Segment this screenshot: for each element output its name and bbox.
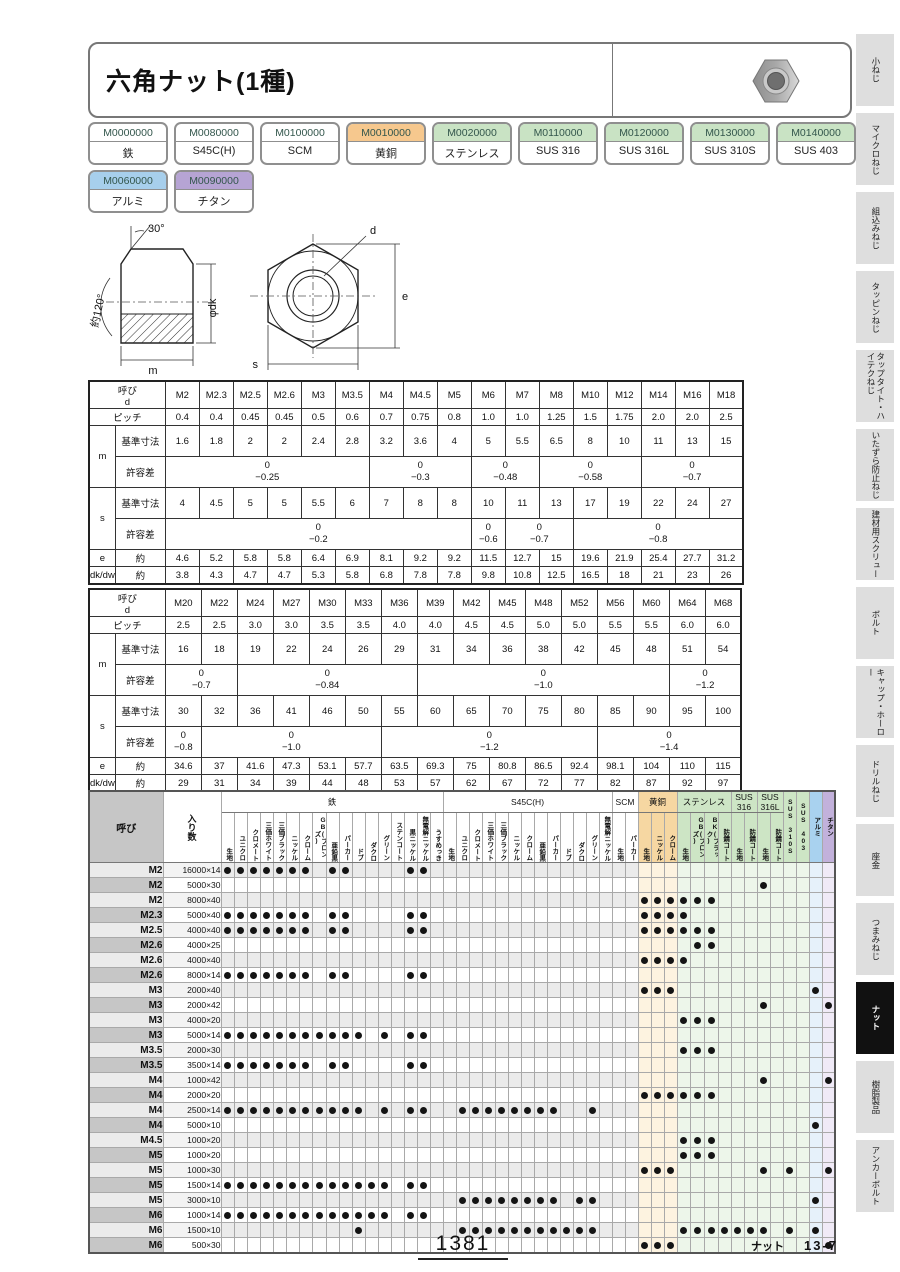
matrix-cell xyxy=(664,1148,677,1163)
matrix-cell xyxy=(783,1028,796,1043)
matrix-cell xyxy=(326,968,339,983)
sidebar-tab: つまみねじ xyxy=(856,903,894,975)
matrix-cell xyxy=(508,953,521,968)
matrix-cell xyxy=(704,1163,718,1178)
matrix-finish-header: グリーン xyxy=(378,813,391,863)
dim-col-header: M36 xyxy=(381,589,417,617)
availability-dot xyxy=(680,897,687,904)
matrix-finish-header: GB(ブロンズ) xyxy=(690,813,704,863)
matrix-qty-header: 入り数 xyxy=(163,791,221,863)
dim-value-cell: 80 xyxy=(561,696,597,727)
matrix-cell xyxy=(704,983,718,998)
matrix-cell xyxy=(339,1043,352,1058)
matrix-cell xyxy=(417,923,430,938)
chip-label: SUS 316 xyxy=(520,142,596,159)
matrix-cell xyxy=(783,923,796,938)
matrix-qty-cell: 4000×40 xyxy=(163,923,221,938)
matrix-cell xyxy=(573,1013,586,1028)
matrix-cell xyxy=(391,1193,404,1208)
matrix-cell xyxy=(573,878,586,893)
matrix-cell xyxy=(312,1013,326,1028)
matrix-cell xyxy=(599,953,612,968)
matrix-cell xyxy=(508,1193,521,1208)
matrix-cell xyxy=(482,983,495,998)
matrix-cell xyxy=(599,908,612,923)
matrix-cell xyxy=(783,1073,796,1088)
matrix-cell xyxy=(221,1163,234,1178)
matrix-cell xyxy=(430,1103,443,1118)
matrix-cell xyxy=(482,1148,495,1163)
matrix-cell xyxy=(770,1043,783,1058)
dim-corner-header: 呼びd xyxy=(89,381,165,409)
matrix-cell xyxy=(299,1058,312,1073)
matrix-cell xyxy=(312,1178,326,1193)
sidebar-tab-label: マイクロねじ xyxy=(870,124,880,175)
matrix-cell xyxy=(273,1193,286,1208)
matrix-cell xyxy=(770,953,783,968)
matrix-cell xyxy=(612,1088,625,1103)
matrix-cell xyxy=(547,1238,560,1254)
matrix-cell xyxy=(352,923,365,938)
matrix-cell xyxy=(664,1028,677,1043)
matrix-cell xyxy=(221,1103,234,1118)
availability-dot xyxy=(316,1107,323,1114)
matrix-cell xyxy=(391,953,404,968)
matrix-cell xyxy=(547,1193,560,1208)
dim-value-cell: 2.4 xyxy=(301,426,335,457)
availability-dot xyxy=(224,1212,231,1219)
matrix-cell xyxy=(783,1223,796,1238)
dim-row-header: 許容差 xyxy=(115,457,165,488)
dim-col-header: M2.6 xyxy=(267,381,301,409)
matrix-cell xyxy=(651,1238,664,1254)
matrix-cell xyxy=(286,1133,299,1148)
matrix-cell xyxy=(273,998,286,1013)
dim-corner-header: 呼びd xyxy=(89,589,165,617)
matrix-cell xyxy=(718,1193,731,1208)
matrix-size-header: 呼び xyxy=(89,791,163,863)
matrix-cell xyxy=(234,968,247,983)
matrix-cell xyxy=(822,953,835,968)
matrix-cell xyxy=(809,953,822,968)
dim-value-cell: 24 xyxy=(309,634,345,665)
chip-code: M0120000 xyxy=(606,124,682,142)
matrix-cell xyxy=(312,908,326,923)
matrix-cell xyxy=(690,1043,704,1058)
matrix-cell xyxy=(718,1058,731,1073)
matrix-cell xyxy=(404,1193,417,1208)
matrix-cell xyxy=(456,1058,469,1073)
matrix-row: M2.35000×40 xyxy=(89,908,835,923)
matrix-cell xyxy=(690,1118,704,1133)
matrix-cell xyxy=(430,1193,443,1208)
matrix-cell xyxy=(482,1133,495,1148)
matrix-size-cell: M4.5 xyxy=(89,1133,163,1148)
dim-value-cell: 85 xyxy=(597,696,633,727)
matrix-cell xyxy=(664,1178,677,1193)
matrix-cell xyxy=(482,968,495,983)
matrix-cell xyxy=(326,1133,339,1148)
matrix-cell xyxy=(521,938,534,953)
matrix-cell xyxy=(796,938,809,953)
matrix-cell xyxy=(247,893,260,908)
matrix-cell xyxy=(796,1208,809,1223)
matrix-cell xyxy=(757,1163,770,1178)
matrix-size-cell: M6 xyxy=(89,1208,163,1223)
catalog-page: 六角ナット(1種) M0000000鉄M0080000S45C(H)M01000… xyxy=(0,0,900,1272)
matrix-cell xyxy=(704,1148,718,1163)
matrix-cell xyxy=(664,1208,677,1223)
matrix-cell xyxy=(326,1043,339,1058)
matrix-cell xyxy=(273,1103,286,1118)
availability-dot xyxy=(368,1182,375,1189)
matrix-cell xyxy=(469,1103,482,1118)
availability-dot xyxy=(641,1167,648,1174)
matrix-cell xyxy=(495,1088,508,1103)
matrix-cell xyxy=(677,938,690,953)
matrix-cell xyxy=(638,1238,651,1254)
matrix-cell xyxy=(456,998,469,1013)
matrix-cell xyxy=(586,1118,599,1133)
matrix-cell xyxy=(770,908,783,923)
sidebar-tab: タップタイト・ハイテクねじ xyxy=(856,350,894,422)
product-chip: M0020000ステンレス xyxy=(432,122,512,165)
matrix-cell xyxy=(731,1058,744,1073)
matrix-cell xyxy=(704,938,718,953)
matrix-qty-cell: 1000×14 xyxy=(163,1208,221,1223)
dim-value-cell: 12.5 xyxy=(539,567,573,585)
matrix-cell xyxy=(573,1193,586,1208)
dim-tolerance-cell: 0−1.4 xyxy=(597,727,741,758)
matrix-cell xyxy=(718,878,731,893)
availability-dot xyxy=(276,1032,283,1039)
product-chip: M0110000SUS 316 xyxy=(518,122,598,165)
matrix-cell xyxy=(651,908,664,923)
matrix-cell xyxy=(612,863,625,878)
matrix-cell xyxy=(378,1043,391,1058)
product-chip: M0130000SUS 310S xyxy=(690,122,770,165)
matrix-cell xyxy=(443,1118,456,1133)
dim-value-cell: 4 xyxy=(437,426,471,457)
matrix-cell xyxy=(299,1148,312,1163)
availability-dot xyxy=(407,972,414,979)
matrix-cell xyxy=(757,1193,770,1208)
matrix-cell xyxy=(469,878,482,893)
matrix-cell xyxy=(547,1223,560,1238)
matrix-cell xyxy=(731,893,744,908)
matrix-cell xyxy=(482,923,495,938)
matrix-cell xyxy=(586,998,599,1013)
matrix-cell xyxy=(822,878,835,893)
matrix-cell xyxy=(247,1043,260,1058)
matrix-cell xyxy=(599,1103,612,1118)
availability-dot xyxy=(420,912,427,919)
matrix-cell xyxy=(430,998,443,1013)
matrix-cell xyxy=(247,983,260,998)
availability-dot xyxy=(407,1212,414,1219)
matrix-cell xyxy=(247,953,260,968)
matrix-cell xyxy=(339,938,352,953)
matrix-cell xyxy=(312,1058,326,1073)
availability-dot xyxy=(342,1032,349,1039)
dim-col-header: M52 xyxy=(561,589,597,617)
dim-row-header: 許容差 xyxy=(115,727,165,758)
matrix-cell xyxy=(260,1013,273,1028)
matrix-finish-header: ドブ xyxy=(352,813,365,863)
dim-col-header: M4.5 xyxy=(403,381,437,409)
matrix-cell xyxy=(638,1193,651,1208)
matrix-cell xyxy=(796,1148,809,1163)
matrix-cell xyxy=(547,1013,560,1028)
matrix-cell xyxy=(273,968,286,983)
matrix-cell xyxy=(822,1103,835,1118)
availability-dot xyxy=(289,972,296,979)
matrix-row: M28000×40 xyxy=(89,893,835,908)
matrix-cell xyxy=(547,1163,560,1178)
availability-dot xyxy=(680,927,687,934)
availability-dot xyxy=(342,1182,349,1189)
matrix-group-header: SUS 310S xyxy=(783,791,796,863)
chip-label: アルミ xyxy=(90,190,166,211)
matrix-cell xyxy=(247,1028,260,1043)
matrix-cell xyxy=(822,923,835,938)
matrix-row: M45000×10 xyxy=(89,1118,835,1133)
label-s: s xyxy=(253,359,259,371)
dim-value-cell: 9.2 xyxy=(403,550,437,567)
matrix-cell xyxy=(326,878,339,893)
dim-row-header: 基準寸法 xyxy=(115,426,165,457)
matrix-cell xyxy=(247,1223,260,1238)
matrix-cell xyxy=(391,1058,404,1073)
matrix-cell xyxy=(365,983,378,998)
dim-tolerance-cell: 0−0.3 xyxy=(369,457,471,488)
matrix-qty-cell: 5000×40 xyxy=(163,908,221,923)
sidebar-tab-label: ドリルねじ xyxy=(870,760,880,803)
dim-tolerance-cell: 0−0.8 xyxy=(573,519,743,550)
matrix-cell xyxy=(547,863,560,878)
matrix-cell xyxy=(456,908,469,923)
matrix-cell xyxy=(796,1088,809,1103)
matrix-cell xyxy=(573,863,586,878)
matrix-cell xyxy=(508,983,521,998)
matrix-cell xyxy=(704,1058,718,1073)
dim-value-cell: 23 xyxy=(675,567,709,585)
dim-value-cell: 60 xyxy=(417,696,453,727)
matrix-cell xyxy=(273,1058,286,1073)
dim-value-cell: 10 xyxy=(471,488,505,519)
dim-value-cell: 17 xyxy=(573,488,607,519)
matrix-cell xyxy=(286,1058,299,1073)
matrix-cell xyxy=(234,998,247,1013)
matrix-cell xyxy=(260,1133,273,1148)
matrix-cell xyxy=(809,1028,822,1043)
availability-dot xyxy=(329,1212,336,1219)
matrix-cell xyxy=(731,1043,744,1058)
chip-code: M0110000 xyxy=(520,124,596,142)
dim-value-cell: 21.9 xyxy=(607,550,641,567)
availability-dot xyxy=(472,1107,479,1114)
matrix-cell xyxy=(612,1178,625,1193)
dim-m-header: m xyxy=(89,634,115,696)
matrix-cell xyxy=(508,1208,521,1223)
matrix-finish-header: 無電解ニッケル xyxy=(417,813,430,863)
matrix-group-header: チタン xyxy=(822,791,835,863)
dim-value-cell: 25.4 xyxy=(641,550,675,567)
matrix-cell xyxy=(560,1103,573,1118)
matrix-cell xyxy=(443,893,456,908)
matrix-cell xyxy=(482,863,495,878)
matrix-cell xyxy=(482,1013,495,1028)
matrix-cell xyxy=(286,1148,299,1163)
matrix-cell xyxy=(286,1028,299,1043)
matrix-cell xyxy=(664,1013,677,1028)
dim-row-header: 許容差 xyxy=(115,665,165,696)
matrix-cell xyxy=(391,938,404,953)
availability-dot xyxy=(342,1107,349,1114)
matrix-cell xyxy=(534,1073,547,1088)
sidebar-tab: タッピンねじ xyxy=(856,271,894,343)
matrix-cell xyxy=(625,1118,638,1133)
matrix-cell xyxy=(404,1118,417,1133)
dim-tolerance-cell: 0−0.7 xyxy=(505,519,573,550)
matrix-cell xyxy=(443,1208,456,1223)
availability-dot xyxy=(250,1182,257,1189)
matrix-cell xyxy=(482,1103,495,1118)
matrix-cell xyxy=(299,863,312,878)
matrix-cell xyxy=(482,1088,495,1103)
matrix-cell xyxy=(573,983,586,998)
availability-dot xyxy=(368,1212,375,1219)
matrix-cell xyxy=(783,893,796,908)
matrix-size-cell: M2 xyxy=(89,878,163,893)
matrix-cell xyxy=(822,1133,835,1148)
matrix-cell xyxy=(573,1148,586,1163)
matrix-cell xyxy=(312,1238,326,1254)
matrix-cell xyxy=(770,1028,783,1043)
matrix-cell xyxy=(547,893,560,908)
matrix-cell xyxy=(677,893,690,908)
matrix-cell xyxy=(430,1043,443,1058)
matrix-cell xyxy=(534,1223,547,1238)
matrix-cell xyxy=(495,1163,508,1178)
matrix-cell xyxy=(234,983,247,998)
matrix-cell xyxy=(744,968,757,983)
matrix-cell xyxy=(260,938,273,953)
matrix-cell xyxy=(521,983,534,998)
matrix-cell xyxy=(260,1208,273,1223)
matrix-cell xyxy=(443,1133,456,1148)
availability-dot xyxy=(641,912,648,919)
matrix-cell xyxy=(299,953,312,968)
matrix-cell xyxy=(482,1178,495,1193)
matrix-cell xyxy=(365,998,378,1013)
availability-dot xyxy=(812,1227,819,1234)
matrix-cell xyxy=(690,878,704,893)
matrix-cell xyxy=(326,1148,339,1163)
matrix-cell xyxy=(757,878,770,893)
matrix-cell xyxy=(690,863,704,878)
availability-dot xyxy=(355,1032,362,1039)
dim-value-cell: 36 xyxy=(237,696,273,727)
matrix-qty-cell: 4000×20 xyxy=(163,1013,221,1028)
matrix-cell xyxy=(809,1208,822,1223)
matrix-cell xyxy=(586,1028,599,1043)
availability-dot xyxy=(289,912,296,919)
matrix-cell xyxy=(443,1043,456,1058)
matrix-cell xyxy=(770,983,783,998)
matrix-cell xyxy=(770,938,783,953)
matrix-cell xyxy=(482,878,495,893)
matrix-cell xyxy=(744,1073,757,1088)
sidebar-tab-label: 小ねじ xyxy=(870,57,880,83)
matrix-cell xyxy=(299,968,312,983)
matrix-cell xyxy=(286,1043,299,1058)
matrix-cell xyxy=(534,1028,547,1043)
matrix-cell xyxy=(469,1148,482,1163)
matrix-cell xyxy=(651,1028,664,1043)
matrix-cell xyxy=(809,1043,822,1058)
matrix-cell xyxy=(690,938,704,953)
availability-dot xyxy=(641,1242,648,1249)
availability-dot xyxy=(760,1077,767,1084)
matrix-cell xyxy=(312,1028,326,1043)
matrix-cell xyxy=(365,1028,378,1043)
matrix-cell xyxy=(260,1028,273,1043)
matrix-cell xyxy=(482,908,495,923)
matrix-cell xyxy=(744,878,757,893)
matrix-cell xyxy=(312,938,326,953)
matrix-cell xyxy=(469,863,482,878)
matrix-cell xyxy=(560,938,573,953)
matrix-cell xyxy=(247,1178,260,1193)
matrix-cell xyxy=(809,968,822,983)
matrix-cell xyxy=(783,938,796,953)
matrix-cell xyxy=(809,998,822,1013)
matrix-qty-cell: 1000×20 xyxy=(163,1133,221,1148)
matrix-cell xyxy=(508,1118,521,1133)
dim-value-cell: 6.0 xyxy=(705,617,741,634)
matrix-cell xyxy=(690,1013,704,1028)
matrix-cell xyxy=(391,968,404,983)
dim-tolerance-cell: 0−0.6 xyxy=(471,519,505,550)
matrix-cell xyxy=(718,1118,731,1133)
dim-tolerance-cell: 0−0.8 xyxy=(165,727,201,758)
matrix-cell xyxy=(482,1073,495,1088)
matrix-cell xyxy=(221,1013,234,1028)
availability-dot xyxy=(459,1197,466,1204)
matrix-size-cell: M2 xyxy=(89,893,163,908)
matrix-cell xyxy=(326,1238,339,1254)
matrix-cell xyxy=(286,1073,299,1088)
matrix-cell xyxy=(718,1073,731,1088)
matrix-cell xyxy=(234,1088,247,1103)
matrix-cell xyxy=(286,1208,299,1223)
availability-dot xyxy=(289,1107,296,1114)
chip-label: SUS 316L xyxy=(606,142,682,159)
matrix-cell xyxy=(378,1193,391,1208)
dim-value-cell: 0.8 xyxy=(437,409,471,426)
matrix-cell xyxy=(809,908,822,923)
matrix-cell xyxy=(339,1133,352,1148)
matrix-cell xyxy=(664,863,677,878)
matrix-row: M4.51000×20 xyxy=(89,1133,835,1148)
matrix-cell xyxy=(365,908,378,923)
matrix-cell xyxy=(495,1208,508,1223)
matrix-cell xyxy=(638,938,651,953)
dim-value-cell: 0.6 xyxy=(335,409,369,426)
matrix-cell xyxy=(757,1073,770,1088)
matrix-cell xyxy=(391,1178,404,1193)
